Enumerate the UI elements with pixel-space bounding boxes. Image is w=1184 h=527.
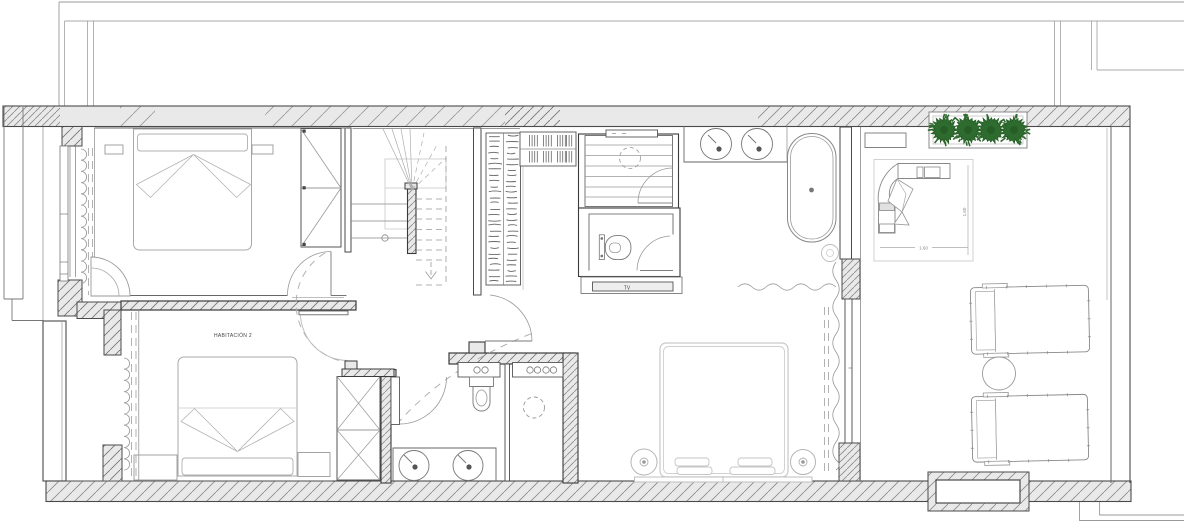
svg-text:TV: TV [624,286,631,292]
svg-text:1.60: 1.60 [962,207,967,216]
svg-text:HABITACIÓN 2: HABITACIÓN 2 [214,332,252,339]
svg-text:1.60: 1.60 [919,246,928,251]
